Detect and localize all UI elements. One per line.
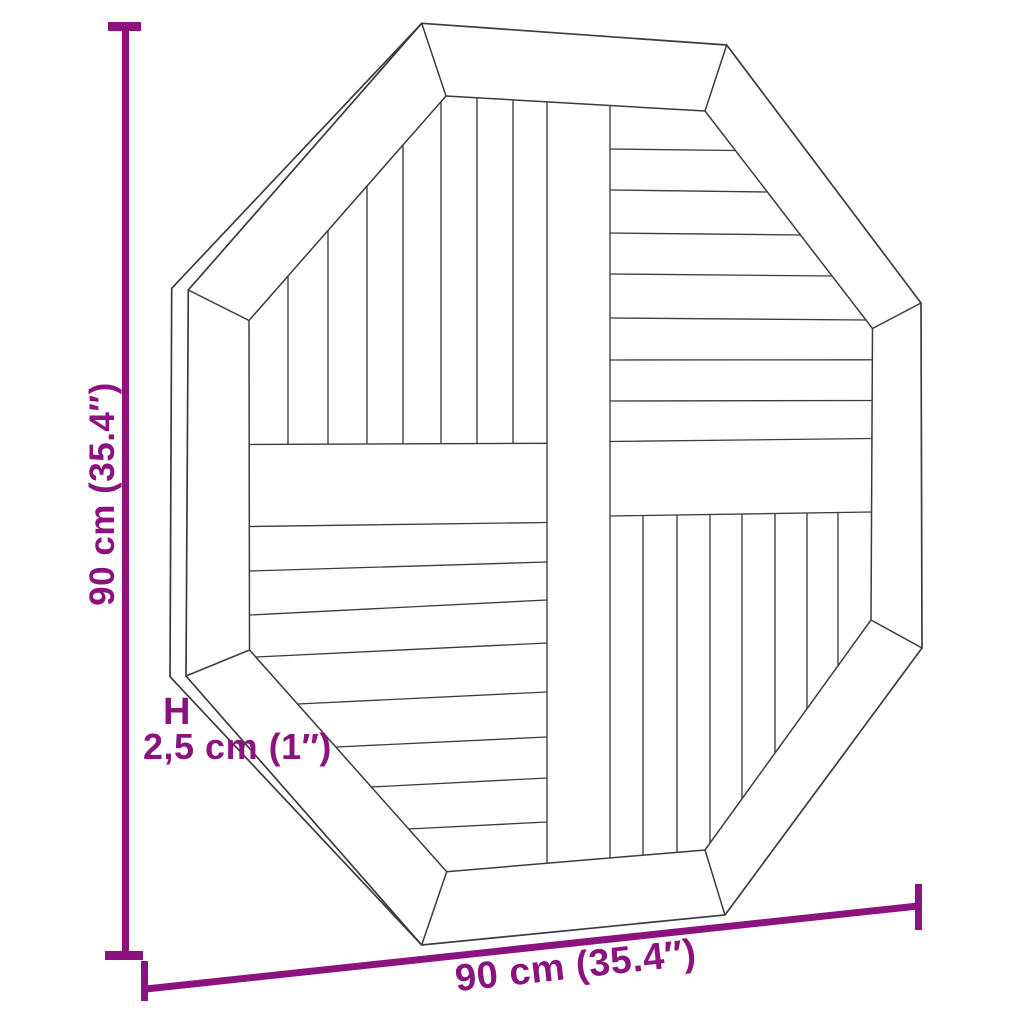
thickness-dimension-label: 2,5 cm (1″)	[143, 726, 332, 767]
dimension-diagram-canvas: 90 cm (35.4″) 90 cm (35.4″) H 2,5 cm (1″…	[0, 0, 1024, 1024]
planks-top-left	[288, 98, 513, 445]
center-vertical-plank	[547, 102, 610, 864]
tabletop-thickness-edge	[170, 23, 422, 945]
planks-bottom-right	[643, 513, 838, 856]
center-horizontal-band	[250, 439, 872, 527]
thickness-dimension: H 2,5 cm (1″)	[143, 691, 332, 767]
octagonal-tabletop-drawing	[170, 23, 922, 945]
tabletop-rim-inner-edge	[249, 96, 873, 872]
rim-corner-joints	[186, 23, 922, 945]
height-dimension-label: 90 cm (35.4″)	[83, 382, 122, 606]
width-dimension: 90 cm (35.4″)	[145, 884, 919, 1001]
planks-bottom-left	[250, 562, 547, 829]
height-dimension: 90 cm (35.4″)	[83, 27, 143, 956]
tabletop-outer-edge	[186, 23, 922, 945]
tabletop-dimension-diagram: 90 cm (35.4″) 90 cm (35.4″) H 2,5 cm (1″…	[0, 0, 1024, 1024]
